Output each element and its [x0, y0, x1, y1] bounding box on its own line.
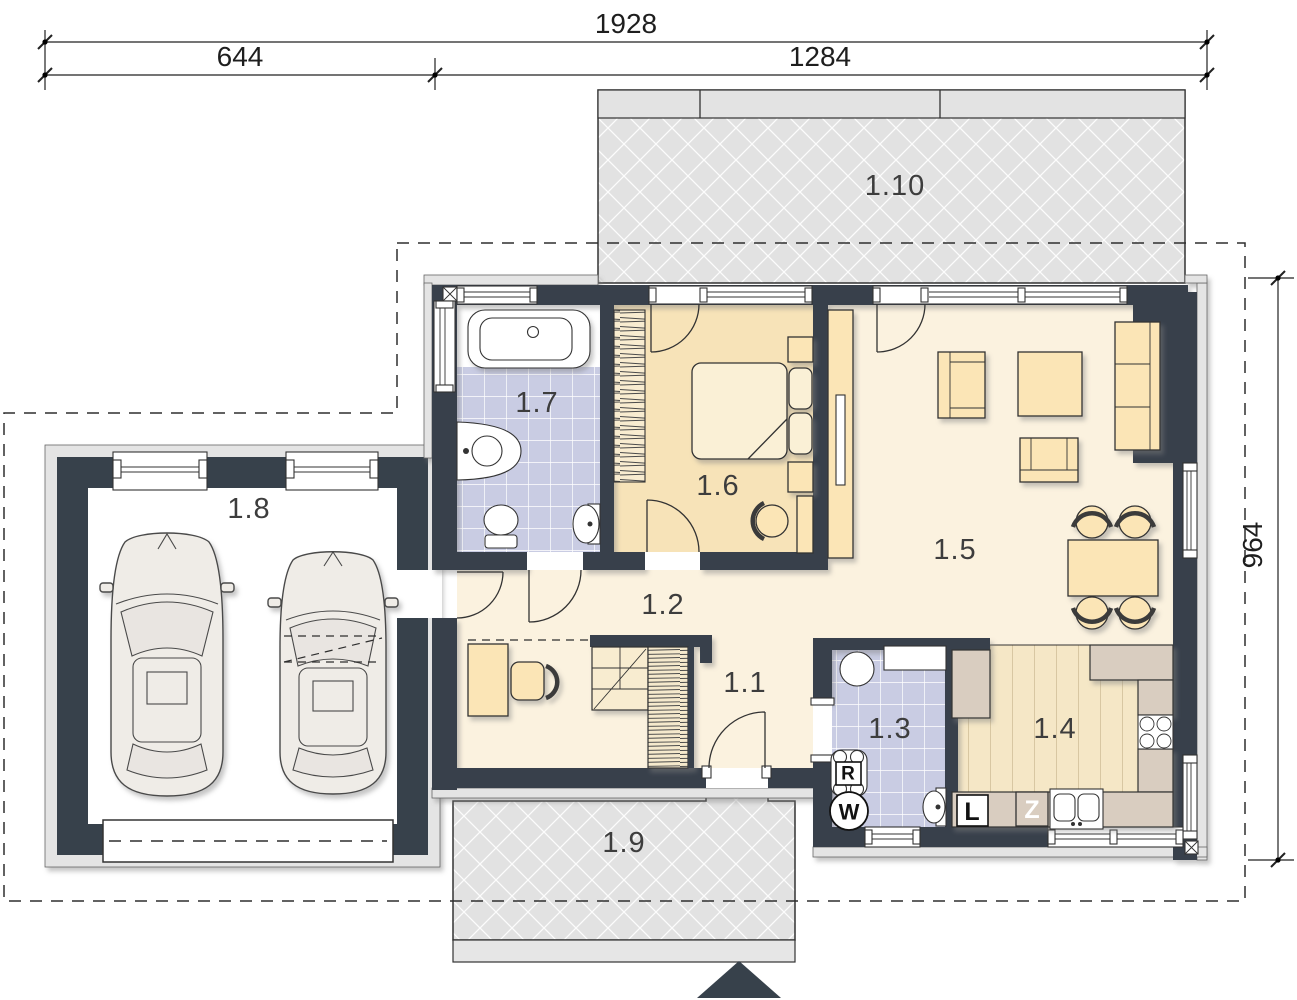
floor-plan-drawing: 1928 644 1284 964 1.10 1.7 1.6 1.5 1.2 1… [0, 0, 1297, 1000]
dim-right-height: 964 [1237, 522, 1268, 569]
toilet-icon [484, 505, 518, 548]
room-label-garage: 1.8 [227, 493, 270, 525]
kitchen-sink-icon [1050, 789, 1103, 829]
car-icon [268, 552, 398, 794]
appliance-label-z: Z [1024, 796, 1039, 824]
car-icon [100, 533, 234, 796]
armchair-icon [938, 352, 985, 418]
garage-window-2 [286, 452, 378, 490]
wardrobe-icon [614, 310, 645, 482]
floor-plan-canvas: 1928 644 1284 964 1.10 1.7 1.6 1.5 1.2 1… [0, 0, 1297, 1000]
garage-door [103, 820, 393, 862]
dim-right-width: 1284 [789, 41, 851, 72]
bathtub-icon [468, 310, 590, 368]
kitchen-side-window [1183, 755, 1197, 839]
room-label-terrace: 1.10 [865, 170, 925, 202]
room-label-corridor: 1.2 [641, 589, 684, 621]
garage-window-1 [113, 452, 207, 490]
room-label-bathroom: 1.7 [515, 387, 558, 419]
bathroom-side-window [434, 301, 455, 392]
bedroom-window-terrace-door [649, 286, 812, 304]
dining-window [1183, 463, 1197, 558]
kitchen-window [1048, 827, 1183, 847]
stool-icon [1020, 438, 1078, 482]
stove-icon [1138, 715, 1173, 749]
living-window-terrace-door [873, 286, 1127, 304]
room-label-hall: 1.1 [723, 667, 766, 699]
appliance-label-w: W [839, 800, 860, 825]
washbasin-icon [573, 504, 600, 544]
tv-cabinet-icon [828, 310, 853, 558]
dim-total-width: 1928 [595, 8, 657, 39]
appliance-label-r: R [841, 764, 855, 785]
room-label-utility: 1.3 [868, 713, 911, 745]
room-label-bedroom: 1.6 [696, 470, 739, 502]
room-label-living: 1.5 [933, 534, 976, 566]
coffee-table-icon [1018, 352, 1082, 416]
sofa-icon [1115, 322, 1160, 450]
room-label-porch: 1.9 [602, 827, 645, 859]
utility-window [865, 827, 920, 847]
room-label-kitchen: 1.4 [1033, 713, 1076, 745]
appliance-label-l: L [964, 798, 979, 826]
bathroom-window [457, 286, 537, 304]
dim-left-width: 644 [217, 41, 264, 72]
